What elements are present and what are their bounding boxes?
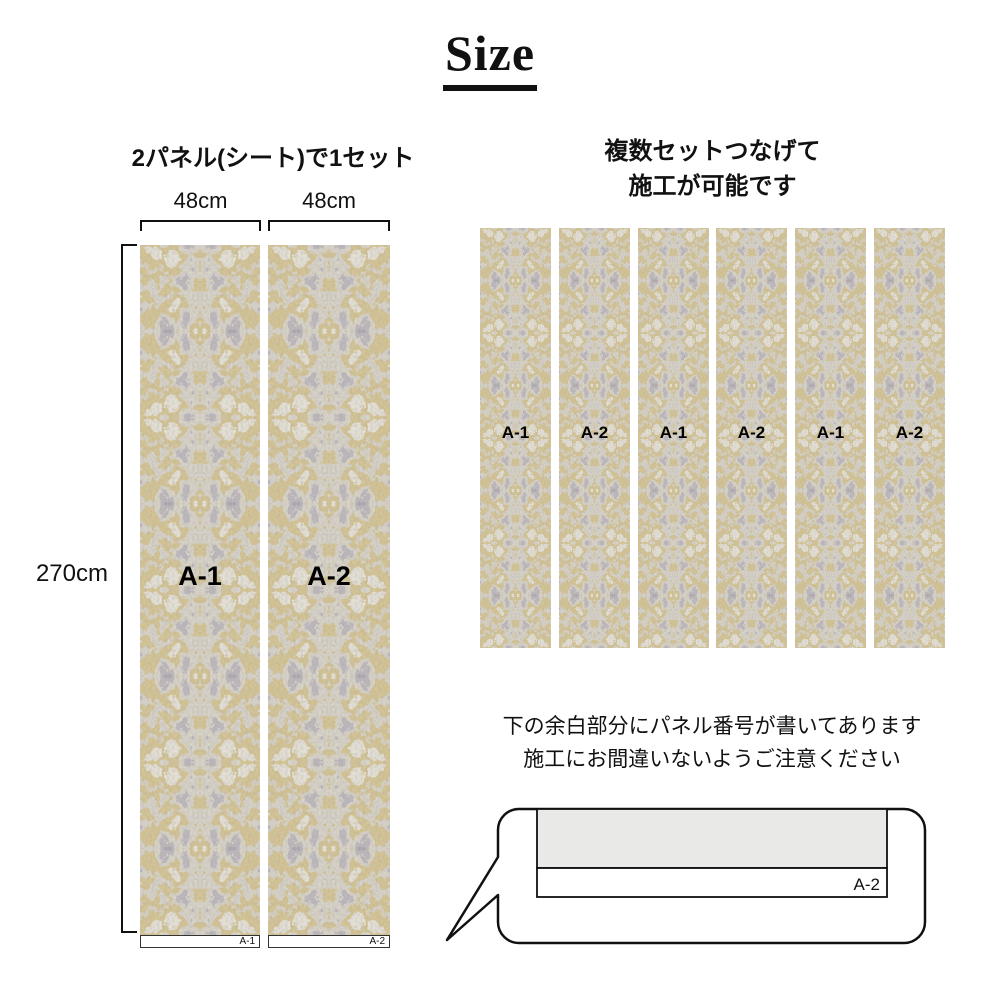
width-label-2: 48cm bbox=[268, 188, 390, 214]
width-bracket-1 bbox=[140, 220, 261, 231]
note-text: 下の余白部分にパネル番号が書いてあります 施工にお間違いないようご注意ください bbox=[478, 710, 946, 776]
multi-panel-5-label: A-1 bbox=[795, 423, 866, 443]
height-bracket bbox=[121, 244, 137, 933]
panel-a1-number-strip: A-1 bbox=[140, 935, 260, 948]
multi-panel-5: A-1 bbox=[795, 228, 866, 648]
panel-a1-center-label: A-1 bbox=[140, 561, 260, 592]
panel-a1-corner-label: A-1 bbox=[239, 936, 255, 947]
width-bracket-2 bbox=[268, 220, 390, 231]
multi-panel-1: A-1 bbox=[480, 228, 551, 648]
panel-a2-center-label: A-2 bbox=[268, 561, 390, 592]
right-heading-line1: 複数セットつなげて bbox=[480, 134, 945, 169]
panel-a2-corner-label: A-2 bbox=[369, 936, 385, 947]
right-section-heading: 複数セットつなげて 施工が可能です bbox=[480, 134, 945, 204]
diagram-panel-number-strip bbox=[537, 868, 887, 897]
multi-panel-3: A-1 bbox=[638, 228, 709, 648]
multi-panel-3-label: A-1 bbox=[638, 423, 709, 443]
multi-panel-4: A-2 bbox=[716, 228, 787, 648]
multi-panel-1-label: A-1 bbox=[480, 423, 551, 443]
panel-a2-number-strip: A-2 bbox=[268, 935, 390, 948]
page-title: Size bbox=[443, 26, 537, 91]
multi-panel-2: A-2 bbox=[559, 228, 630, 648]
multi-panel-6-label: A-2 bbox=[874, 423, 945, 443]
note-line1: 下の余白部分にパネル番号が書いてあります bbox=[478, 710, 946, 743]
left-section-heading: 2パネル(シート)で1セット bbox=[48, 138, 498, 173]
multi-panel-2-label: A-2 bbox=[559, 423, 630, 443]
panel-a2: A-2 bbox=[268, 245, 390, 935]
height-label: 270cm bbox=[14, 560, 108, 588]
diagram-panel-pattern-area bbox=[537, 809, 887, 868]
right-heading-line2: 施工が可能です bbox=[480, 169, 945, 204]
multi-panel-4-label: A-2 bbox=[716, 423, 787, 443]
diagram-panel-number-label: A-2 bbox=[854, 875, 880, 894]
wallpaper-size-guide: Size 2パネル(シート)で1セット 48cm 48cm 270cm A-1 … bbox=[0, 0, 1000, 1000]
title-row: Size bbox=[0, 26, 980, 91]
panel-a1: A-1 bbox=[140, 245, 260, 935]
note-line2: 施工にお間違いないようご注意ください bbox=[478, 743, 946, 776]
panel-number-diagram: A-2 bbox=[430, 795, 940, 965]
multi-panel-6: A-2 bbox=[874, 228, 945, 648]
width-label-1: 48cm bbox=[140, 188, 261, 214]
